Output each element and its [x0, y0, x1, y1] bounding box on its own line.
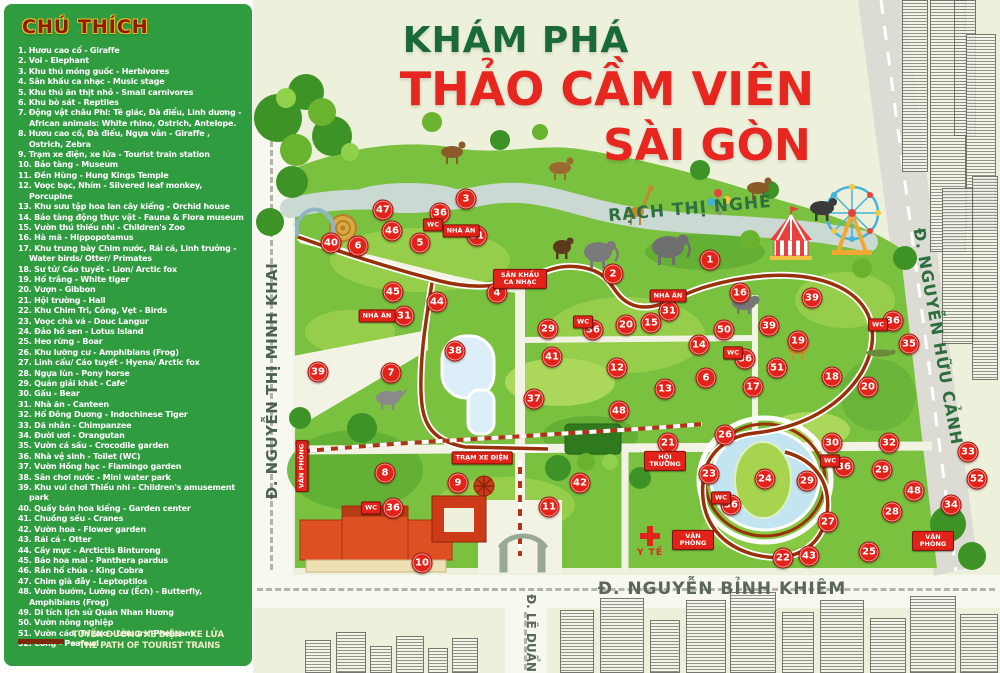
- medical-cross-icon: [640, 526, 660, 546]
- legend-item: 17. Khu trưng bày Chim nước, Rái cá, Lin…: [18, 244, 244, 265]
- legend-item: 22. Khu Chim Trĩ, Công, Vẹt - Birds: [18, 306, 244, 316]
- legend-item: 24. Đảo hồ sen - Lotus Island: [18, 327, 244, 337]
- map-marker-13[interactable]: 13: [655, 379, 676, 400]
- map-marker-11[interactable]: 11: [539, 497, 560, 518]
- legend-item: 10. Bảo tàng - Museum: [18, 160, 244, 170]
- facility-sign: VĂN PHÒNG: [295, 440, 308, 492]
- legend-item: 5. Khu thú ăn thịt nhỏ - Small carnivore…: [18, 88, 244, 98]
- map-marker-20[interactable]: 20: [616, 315, 637, 336]
- legend-item: 37. Vườn Hồng hạc - Flamingo garden: [18, 462, 244, 472]
- facility-sign: WC: [361, 501, 381, 514]
- facility-sign: VĂN PHÒNG: [672, 530, 714, 550]
- map-marker-47[interactable]: 47: [373, 200, 394, 221]
- map-marker-42[interactable]: 42: [570, 473, 591, 494]
- legend-item: 20. Vượn - Gibbon: [18, 285, 244, 295]
- map-marker-39[interactable]: 39: [759, 316, 780, 337]
- map-marker-18[interactable]: 18: [822, 367, 843, 388]
- legend-item: 8. Hươu cao cổ, Đà điểu, Ngựa vằn - Gira…: [18, 129, 244, 150]
- legend-list: 1. Hươu cao cổ - Giraffe2. Voi - Elephan…: [18, 46, 244, 650]
- map-marker-25[interactable]: 25: [859, 542, 880, 563]
- map-marker-7[interactable]: 7: [381, 363, 402, 384]
- facility-sign: NHÀ ĂN: [443, 224, 480, 237]
- map-marker-29[interactable]: 29: [797, 471, 818, 492]
- map-marker-34[interactable]: 34: [941, 495, 962, 516]
- map-marker-1[interactable]: 1: [700, 250, 721, 271]
- medical-label: Y TẾ: [628, 548, 672, 558]
- legend-item: 27. Linh cẩu/ Cáo tuyết - Hyena/ Arctic …: [18, 358, 244, 368]
- map-marker-48[interactable]: 48: [609, 401, 630, 422]
- legend-item: 12. Voọc bạc, Nhím - Silvered leaf monke…: [18, 181, 244, 202]
- legend-item: 11. Đền Hùng - Hung Kings Temple: [18, 171, 244, 181]
- facility-sign: SÂN KHẤU CA NHẠC: [493, 269, 547, 289]
- legend-item: 9. Trạm xe điện, xe lửa - Tourist train …: [18, 150, 244, 160]
- facility-sign: WC: [423, 218, 443, 231]
- map-marker-2[interactable]: 2: [603, 264, 624, 285]
- legend-item: 26. Khu lưỡng cư - Amphibians (Frog): [18, 348, 244, 358]
- map-marker-17[interactable]: 17: [743, 377, 764, 398]
- map-marker-20[interactable]: 20: [858, 377, 879, 398]
- map-marker-5[interactable]: 5: [410, 233, 431, 254]
- legend-item: 48. Vườn bướm, Lưỡng cư (Ếch) - Butterfl…: [18, 587, 244, 608]
- street-label-nguyen-binh-khiem: Đ. NGUYỄN BỈNH KHIÊM: [520, 579, 924, 599]
- legend-item: 36. Nhà vệ sinh - Toilet (WC): [18, 452, 244, 462]
- legend-item: 4. Sân khấu ca nhạc - Music stage: [18, 77, 244, 87]
- map-marker-6[interactable]: 6: [348, 236, 369, 257]
- legend-item: 14. Bảo tàng động thực vật - Fauna & Flo…: [18, 213, 244, 223]
- map-marker-10[interactable]: 10: [412, 553, 433, 574]
- legend-item: 2. Voi - Elephant: [18, 56, 244, 66]
- map-marker-44[interactable]: 44: [427, 292, 448, 313]
- map-marker-48[interactable]: 48: [904, 481, 925, 502]
- legend-item: 15. Vườn thú thiếu nhi - Children's Zoo: [18, 223, 244, 233]
- legend-item: 19. Hổ trắng - White tiger: [18, 275, 244, 285]
- map-marker-35[interactable]: 35: [899, 334, 920, 355]
- legend-item: 43. Rái cá - Otter: [18, 535, 244, 545]
- legend-item: 45. Báo hoa mai - Panthera pardus: [18, 556, 244, 566]
- map-marker-31[interactable]: 31: [394, 306, 415, 327]
- legend-item: 33. Dã nhân - Chimpanzee: [18, 421, 244, 431]
- legend-item: 18. Sư tử/ Cáo tuyết - Lion/ Arctic fox: [18, 265, 244, 275]
- map-marker-28[interactable]: 28: [882, 502, 903, 523]
- map-marker-6[interactable]: 6: [696, 368, 717, 389]
- poster-title-line2: THẢO CẦM VIÊN: [377, 62, 837, 116]
- legend-sidebar: CHÚ THÍCH 1. Hươu cao cổ - Giraffe2. Voi…: [4, 4, 252, 666]
- legend-item: 49. Di tích lịch sử Quán Nhan Hương: [18, 608, 244, 618]
- legend-item: 40. Quầy bán hoa kiểng - Garden center: [18, 504, 244, 514]
- map-marker-43[interactable]: 43: [799, 546, 820, 567]
- legend-item: 47. Chim già đẫy - Leptoptilos: [18, 577, 244, 587]
- facility-sign: WC: [573, 315, 593, 328]
- map-marker-12[interactable]: 12: [607, 358, 628, 379]
- legend-item: 32. Hổ Đông Dương - Indochinese Tiger: [18, 410, 244, 420]
- map-marker-32[interactable]: 32: [879, 433, 900, 454]
- map-marker-22[interactable]: 22: [773, 548, 794, 569]
- map-marker-40[interactable]: 40: [321, 233, 342, 254]
- facility-sign: WC: [820, 454, 840, 467]
- legend-item: 25. Heo rừng - Boar: [18, 337, 244, 347]
- poster-title-line1: KHÁM PHÁ: [366, 20, 666, 61]
- map-marker-3[interactable]: 3: [456, 189, 477, 210]
- legend-title: CHÚ THÍCH: [22, 16, 244, 38]
- legend-item: 23. Voọc chà vá - Douc Langur: [18, 317, 244, 327]
- map-marker-26[interactable]: 26: [715, 425, 736, 446]
- legend-item: 31. Nhà ăn - Canteen: [18, 400, 244, 410]
- legend-item: 38. Sân chơi nước - Mini water park: [18, 473, 244, 483]
- legend-item: 16. Hà mã - Hippopotamus: [18, 233, 244, 243]
- legend-item: 3. Khu thú móng guốc - Herbivores: [18, 67, 244, 77]
- legend-item: 44. Cầy mực - Arctictis Binturong: [18, 546, 244, 556]
- map-marker-51[interactable]: 51: [767, 358, 788, 379]
- map-marker-29[interactable]: 29: [872, 460, 893, 481]
- legend-item: 42. Vườn hoa - Flower garden: [18, 525, 244, 535]
- legend-item: 21. Hội trường - Hall: [18, 296, 244, 306]
- poster-title-line3: SÀI GÒN: [557, 120, 857, 171]
- facility-sign: VĂN PHÒNG: [912, 531, 954, 551]
- facility-sign: TRẠM XE ĐIỆN: [452, 451, 513, 464]
- legend-item: 46. Rắn hổ chúa - King Cobra: [18, 566, 244, 576]
- legend-item: 35. Vườn cá sấu - Crocodile garden: [18, 441, 244, 451]
- map-marker-41[interactable]: 41: [542, 347, 563, 368]
- map-marker-37[interactable]: 37: [524, 389, 545, 410]
- map-marker-15[interactable]: 15: [641, 313, 662, 334]
- legend-item: 30. Gấu - Bear: [18, 389, 244, 399]
- legend-item: 34. Đười ươi - Orangutan: [18, 431, 244, 441]
- train-path-legend: TUYẾN ĐƯỜNG XE ĐIỆN - XE LỬA * THE PATH …: [18, 630, 224, 652]
- legend-item: 13. Khu sưu tập hoa lan cây kiểng - Orch…: [18, 202, 244, 212]
- map-marker-29[interactable]: 29: [538, 319, 559, 340]
- legend-item: 6. Khu bò sát - Reptiles: [18, 98, 244, 108]
- map-marker-30[interactable]: 30: [822, 433, 843, 454]
- map-marker-36[interactable]: 36: [383, 498, 404, 519]
- map-marker-14[interactable]: 14: [689, 335, 710, 356]
- map-marker-9[interactable]: 9: [448, 473, 469, 494]
- legend-swatch-train-path: [18, 639, 64, 644]
- train-legend-line2: * THE PATH OF TOURIST TRAINS: [72, 641, 224, 652]
- map-marker-16[interactable]: 16: [730, 283, 751, 304]
- legend-item: 41. Chuồng sếu - Cranes: [18, 514, 244, 524]
- legend-item: 50. Vườn nông nghiệp: [18, 618, 244, 628]
- facility-sign: HỘI TRƯỜNG: [644, 451, 686, 471]
- legend-item: 28. Ngựa lùn - Pony horse: [18, 369, 244, 379]
- street-label-le-duan: Đ. LÊ DUẨN: [524, 578, 538, 673]
- train-legend-line1: TUYẾN ĐƯỜNG XE ĐIỆN - XE LỬA: [72, 630, 224, 641]
- facility-sign: NHÀ ĂN: [359, 309, 396, 322]
- legend-item: 1. Hươu cao cổ - Giraffe: [18, 46, 244, 56]
- map-marker-27[interactable]: 27: [818, 512, 839, 533]
- legend-item: 7. Động vật châu Phi: Tê giác, Đà điểu, …: [18, 108, 244, 129]
- map-marker-39[interactable]: 39: [308, 362, 329, 383]
- facility-sign: WC: [723, 346, 743, 359]
- zoo-map-poster: 1234566789101112131415161718192020212223…: [0, 0, 1000, 673]
- map-marker-23[interactable]: 23: [699, 464, 720, 485]
- facility-sign: WC: [868, 318, 888, 331]
- legend-item: 39. Khu vui chơi Thiếu nhi - Children's …: [18, 483, 244, 504]
- map-marker-45[interactable]: 45: [383, 282, 404, 303]
- map-marker-50[interactable]: 50: [714, 320, 735, 341]
- map-marker-38[interactable]: 38: [445, 341, 466, 362]
- map-marker-19[interactable]: 19: [788, 331, 809, 352]
- street-label-nguyen-thi-minh-khai: Đ. NGUYỄN THỊ MINH KHAI: [263, 221, 281, 541]
- facility-sign: NHÀ ĂN: [650, 289, 687, 302]
- map-marker-8[interactable]: 8: [375, 463, 396, 484]
- map-marker-39[interactable]: 39: [802, 288, 823, 309]
- map-marker-31[interactable]: 31: [659, 301, 680, 322]
- map-marker-46[interactable]: 46: [382, 221, 403, 242]
- legend-item: 29. Quán giải khát - Cafe': [18, 379, 244, 389]
- map-marker-24[interactable]: 24: [755, 469, 776, 490]
- facility-sign: WC: [711, 491, 731, 504]
